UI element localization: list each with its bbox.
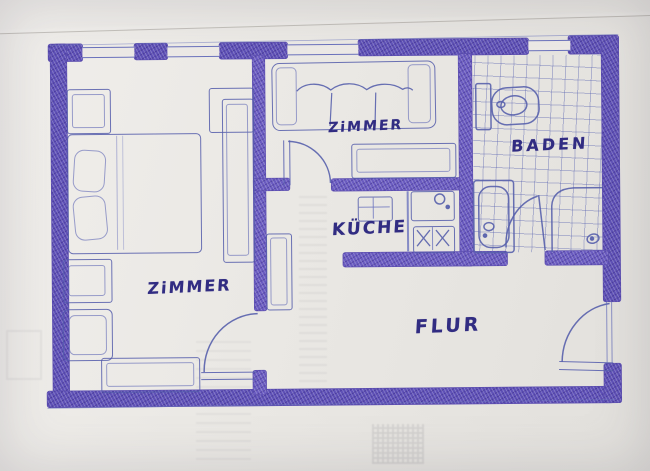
room-label-kitchen: KÜCHE xyxy=(331,217,407,240)
wall-top-2 xyxy=(134,43,167,59)
kitchen-table-line-v xyxy=(373,198,374,219)
bedroom-door-leaf xyxy=(201,372,256,380)
floor-plan: ZiMMER ZiMMER KÜCHE BADEN FLUR xyxy=(0,0,650,471)
pillow-2 xyxy=(72,195,109,242)
entry-door-leaf xyxy=(559,361,613,371)
window-2 xyxy=(167,46,219,57)
sideboard-inner xyxy=(106,362,194,387)
room-label-bathroom: BADEN xyxy=(511,133,589,155)
entry-door-frame xyxy=(607,302,613,363)
stool-inner xyxy=(69,315,107,355)
living-table-inner xyxy=(356,148,450,173)
kitchen-table-line-h xyxy=(359,206,390,208)
room-label-living-room: ZiMMER xyxy=(328,117,404,136)
stove-divider xyxy=(432,227,434,250)
couch-arm-left xyxy=(276,67,298,125)
bedroom-door-arc xyxy=(204,314,259,372)
couch-arm-right xyxy=(408,64,432,123)
sink-counter xyxy=(411,191,455,221)
window-4 xyxy=(528,40,570,51)
hall-shelf-inner xyxy=(270,237,288,305)
wall-living-kitchen xyxy=(332,178,462,191)
pillow-1 xyxy=(72,149,107,193)
wardrobe-inner xyxy=(226,104,249,256)
living-door-leaf xyxy=(283,140,290,185)
wall-kitchen-bath xyxy=(458,54,473,266)
room-label-hallway: FLUR xyxy=(414,313,482,338)
wall-bath-bottom xyxy=(545,251,608,266)
nightstand-inner xyxy=(72,94,105,128)
window-3 xyxy=(287,44,358,56)
room-label-bedroom: ZiMMER xyxy=(147,275,232,298)
wall-kitchen-bottom xyxy=(343,251,507,266)
entry-door-arc xyxy=(562,304,611,362)
desk-inner xyxy=(68,265,105,296)
living-door-arc xyxy=(288,141,330,183)
paper-photo: ZiMMER ZiMMER KÜCHE BADEN FLUR xyxy=(0,0,650,471)
stove xyxy=(413,226,455,253)
window-1 xyxy=(82,47,134,58)
wall-top-4 xyxy=(358,38,528,55)
